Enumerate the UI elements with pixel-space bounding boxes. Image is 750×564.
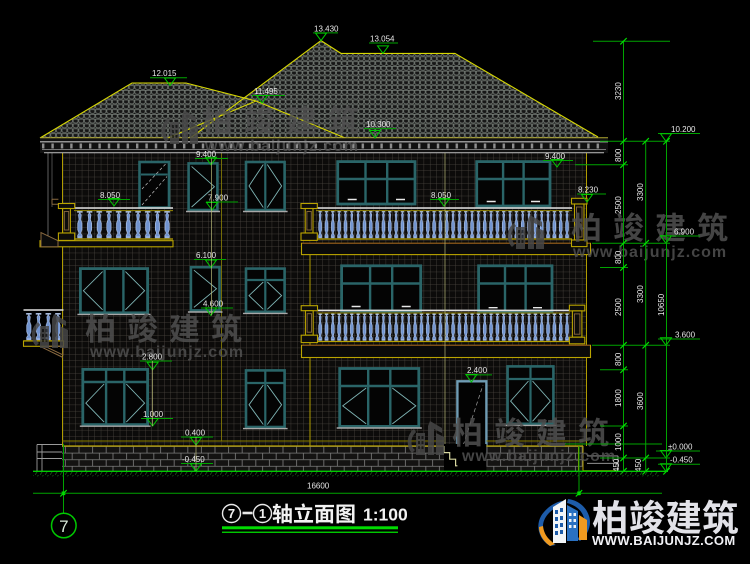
svg-text:2500: 2500 bbox=[614, 298, 623, 316]
svg-text:7: 7 bbox=[59, 517, 68, 536]
svg-text:13.054: 13.054 bbox=[370, 34, 395, 43]
svg-text:0.400: 0.400 bbox=[185, 429, 206, 438]
svg-text:2.800: 2.800 bbox=[142, 353, 163, 362]
svg-text:8.230: 8.230 bbox=[578, 186, 599, 195]
svg-text:-0.450: -0.450 bbox=[182, 455, 205, 464]
svg-text:800: 800 bbox=[614, 352, 623, 366]
svg-text:16600: 16600 bbox=[307, 482, 330, 491]
svg-text:12.015: 12.015 bbox=[152, 69, 177, 78]
svg-text:www.baijunjz.com: www.baijunjz.com bbox=[89, 344, 244, 361]
svg-text:800: 800 bbox=[614, 148, 623, 162]
svg-text:13.430: 13.430 bbox=[314, 24, 339, 33]
svg-text:11.495: 11.495 bbox=[254, 87, 278, 96]
svg-text:3600: 3600 bbox=[636, 392, 645, 410]
svg-text:3300: 3300 bbox=[636, 183, 645, 201]
svg-text:3.600: 3.600 bbox=[675, 331, 696, 340]
svg-text:8.050: 8.050 bbox=[100, 191, 121, 200]
svg-text:450: 450 bbox=[634, 458, 643, 472]
svg-text:800: 800 bbox=[614, 250, 623, 264]
svg-text:10.300: 10.300 bbox=[366, 120, 391, 129]
svg-text:450: 450 bbox=[612, 458, 621, 472]
svg-text:6.100: 6.100 bbox=[196, 251, 217, 260]
svg-text:±0.000: ±0.000 bbox=[668, 443, 693, 452]
svg-text:7.900: 7.900 bbox=[208, 194, 229, 203]
svg-text:1: 1 bbox=[259, 506, 266, 521]
svg-text:www.baijunjz.com: www.baijunjz.com bbox=[461, 448, 616, 465]
svg-text:www.baijunjz.com: www.baijunjz.com bbox=[204, 138, 359, 155]
svg-text:1:100: 1:100 bbox=[363, 505, 408, 525]
svg-text:1000: 1000 bbox=[614, 433, 623, 451]
svg-text:9.400: 9.400 bbox=[545, 152, 566, 161]
svg-text:www.baijunjz.com: www.baijunjz.com bbox=[572, 244, 727, 261]
svg-text:10.200: 10.200 bbox=[671, 125, 696, 134]
svg-text:1.000: 1.000 bbox=[143, 410, 164, 419]
svg-text:2.400: 2.400 bbox=[467, 366, 488, 375]
svg-text:4.600: 4.600 bbox=[203, 300, 224, 309]
svg-text:9.400: 9.400 bbox=[196, 150, 217, 159]
svg-text:WWW.BAIJUNJZ.COM: WWW.BAIJUNJZ.COM bbox=[592, 533, 736, 548]
svg-text:-0.450: -0.450 bbox=[670, 456, 693, 465]
svg-text:3300: 3300 bbox=[636, 285, 645, 303]
svg-text:1800: 1800 bbox=[614, 389, 623, 407]
svg-text:10650: 10650 bbox=[657, 293, 666, 316]
svg-text:3230: 3230 bbox=[614, 82, 623, 100]
svg-text:6.900: 6.900 bbox=[674, 228, 695, 237]
svg-text:2500: 2500 bbox=[614, 196, 623, 214]
svg-text:8.050: 8.050 bbox=[431, 191, 452, 200]
svg-text:7: 7 bbox=[228, 506, 235, 521]
